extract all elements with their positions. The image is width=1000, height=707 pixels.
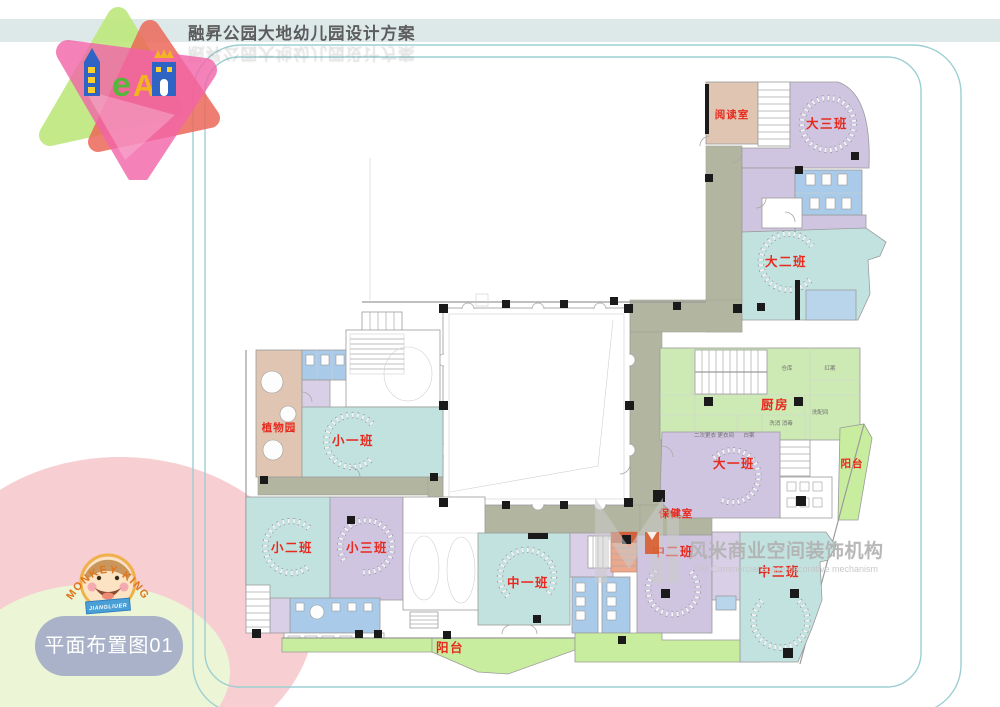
label-xiao2: 小二班 xyxy=(270,540,313,555)
logo-letter-e: e xyxy=(112,66,131,104)
label-da1: 大一班 xyxy=(713,456,755,471)
watermark-cn: 风米商业空间装饰机构 xyxy=(688,539,883,562)
label-baian: 白案 xyxy=(743,431,755,439)
plan-title-badge: 平面布置图01 xyxy=(35,616,183,676)
stair-kitchen xyxy=(695,350,767,394)
block-lower-left xyxy=(246,497,485,651)
label-da3: 大三班 xyxy=(806,116,848,131)
watermark-en: F.M Commercial space decorative mechanis… xyxy=(694,564,878,574)
label-erci: 二次更衣 更衣间 xyxy=(694,431,734,439)
stair-lower-left xyxy=(246,585,270,633)
kitchen-block xyxy=(660,348,860,440)
label-xiao3: 小三班 xyxy=(345,540,388,555)
label-hongan: 红案 xyxy=(824,364,836,372)
room-da1 xyxy=(660,432,780,518)
logo-letter-castle xyxy=(152,49,176,96)
label-reading: 阅读室 xyxy=(715,108,750,121)
label-balcony-right: 阳台 xyxy=(841,457,864,470)
monkey-tongue xyxy=(102,593,114,600)
stair-hall xyxy=(346,330,440,407)
label-botany: 植物园 xyxy=(261,421,297,434)
label-da2: 大二班 xyxy=(765,254,807,269)
label-xixiao: 洗消 消毒 xyxy=(769,419,793,427)
label-storage: 仓库 xyxy=(781,364,793,372)
label-zhong1: 中一班 xyxy=(507,575,549,590)
label-kitchen: 厨房 xyxy=(761,397,789,412)
label-xipeijian: 洗配间 xyxy=(812,408,829,416)
stair-top xyxy=(758,82,790,146)
brand-logo: e A xyxy=(25,5,225,180)
label-balcony-bottom: 阳台 xyxy=(436,640,464,655)
label-xiao1: 小一班 xyxy=(331,433,374,448)
floor-plan: 阅读室 大三班 大二班 厨房 阳台 大一班 保健室 植物园 小一班 小二班 小三… xyxy=(246,82,886,674)
stair-utility xyxy=(410,612,438,628)
utility-pools xyxy=(403,497,485,610)
page: 阅读室 大三班 大二班 厨房 阳台 大一班 保健室 植物园 小一班 小二班 小三… xyxy=(0,0,1000,707)
